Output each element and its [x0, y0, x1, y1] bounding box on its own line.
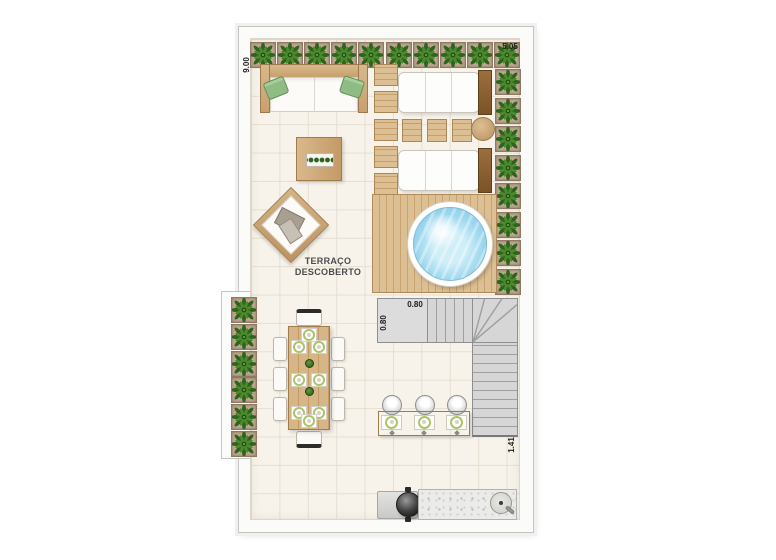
planter-box	[495, 98, 521, 124]
plant-icon	[496, 70, 520, 94]
plate-icon	[293, 341, 305, 353]
dining-place-setting	[291, 340, 307, 354]
dining-chair	[273, 367, 287, 391]
planter-box	[495, 69, 521, 95]
plate-icon	[313, 341, 325, 353]
lounger-side-tables	[402, 119, 472, 142]
plate-icon	[418, 416, 431, 429]
planter-box	[231, 297, 257, 323]
lounger-cushion	[398, 150, 480, 191]
plant-icon	[496, 213, 520, 237]
plant-icon	[496, 184, 520, 208]
dining-settings-left	[291, 340, 307, 420]
plant-icon	[496, 127, 520, 151]
table-centerpiece	[305, 359, 314, 368]
bar-place-settings	[381, 414, 467, 430]
planter-box	[495, 212, 521, 238]
pool	[408, 202, 492, 286]
wood-deck-square	[374, 119, 398, 141]
plant-icon	[232, 298, 256, 322]
dim-stair-depth: 0.80	[379, 310, 389, 336]
plant-icon	[496, 99, 520, 123]
round-side-table	[471, 117, 495, 141]
room-label-line2: DESCOBERTO	[284, 267, 372, 278]
dining-chair	[331, 397, 345, 421]
planter-box	[467, 42, 493, 68]
plate-icon	[293, 374, 305, 386]
plant-icon	[468, 43, 492, 67]
dim-left-height: 9.00	[242, 52, 252, 78]
dining-place-setting	[301, 414, 317, 428]
dining-chairs-left	[273, 337, 287, 421]
stair-flight-upper	[427, 298, 473, 343]
plate-icon	[313, 374, 325, 386]
sofa	[260, 64, 368, 113]
dim-stair-width: 0.80	[402, 300, 428, 310]
dining-chair	[273, 337, 287, 361]
room-label: TERRAÇO DESCOBERTO	[284, 256, 372, 279]
plant-icon	[496, 156, 520, 180]
dining-chair-foot	[296, 431, 322, 448]
planter-box	[413, 42, 439, 68]
plant-icon	[414, 43, 438, 67]
plant-icon	[232, 432, 256, 456]
dining-chair	[273, 397, 287, 421]
planter-box	[495, 155, 521, 181]
bar-place-setting	[381, 415, 402, 430]
bbq-handle	[405, 517, 411, 522]
table-centerpiece	[305, 387, 314, 396]
planter-column-right	[494, 69, 521, 295]
dining-chair-head	[296, 309, 322, 326]
wood-deck-square	[374, 91, 398, 113]
planter-box	[231, 351, 257, 377]
plant-icon	[441, 43, 465, 67]
lounger-cushion	[398, 72, 480, 113]
lounger-side-table	[452, 119, 472, 142]
dim-stair-clearance: 1.41	[507, 432, 517, 458]
deck-square-column	[374, 64, 398, 195]
bar-place-setting	[446, 415, 467, 430]
dining-place-setting	[301, 328, 317, 342]
lounger-headrest-frame	[478, 70, 492, 115]
room-label-line1: TERRAÇO	[284, 256, 372, 267]
planter-box	[231, 377, 257, 403]
planter-column-left	[230, 297, 257, 457]
planter-box	[231, 431, 257, 457]
plant-icon	[496, 270, 520, 294]
lounger-side-table	[402, 119, 422, 142]
wood-deck-square	[374, 173, 398, 195]
stair-winder-treads	[473, 299, 517, 342]
dining-place-setting	[291, 373, 307, 387]
plate-icon	[450, 416, 463, 429]
plant-tray	[306, 153, 334, 167]
stair-flight-lower	[472, 342, 518, 437]
planter-box	[495, 240, 521, 266]
wood-deck-square	[374, 146, 398, 168]
planter-box	[231, 324, 257, 350]
sun-lounger-bottom	[398, 148, 492, 193]
plate-icon	[303, 329, 315, 341]
planter-box	[495, 269, 521, 295]
lounger-headrest-frame	[478, 148, 492, 193]
planter-box	[495, 126, 521, 152]
pool-water	[413, 207, 487, 281]
bar-place-setting	[414, 415, 435, 430]
dining-place-setting	[311, 340, 327, 354]
planter-box	[231, 404, 257, 430]
plate-icon	[303, 415, 315, 427]
dining-chair	[331, 337, 345, 361]
plant-icon	[232, 405, 256, 429]
plant-icon	[232, 378, 256, 402]
plant-icon	[232, 352, 256, 376]
wood-deck-square	[374, 64, 398, 86]
dim-top-width: 5.05	[497, 42, 523, 52]
dining-chair	[331, 367, 345, 391]
floor-plan: TERRAÇO DESCOBERTO 9.00 5.05 0.80 0	[0, 0, 776, 560]
coffee-table	[296, 137, 342, 181]
dining-settings-right	[311, 340, 327, 420]
dining-place-setting	[311, 373, 327, 387]
sun-lounger-top	[398, 70, 492, 115]
lounger-side-table	[427, 119, 447, 142]
plant-icon	[496, 241, 520, 265]
planter-box	[440, 42, 466, 68]
sofa-back-frame	[260, 64, 368, 78]
dining-chairs-right	[331, 337, 345, 421]
planter-box	[495, 183, 521, 209]
plant-icon	[232, 325, 256, 349]
stair-winder	[472, 298, 518, 343]
plate-icon	[385, 416, 398, 429]
